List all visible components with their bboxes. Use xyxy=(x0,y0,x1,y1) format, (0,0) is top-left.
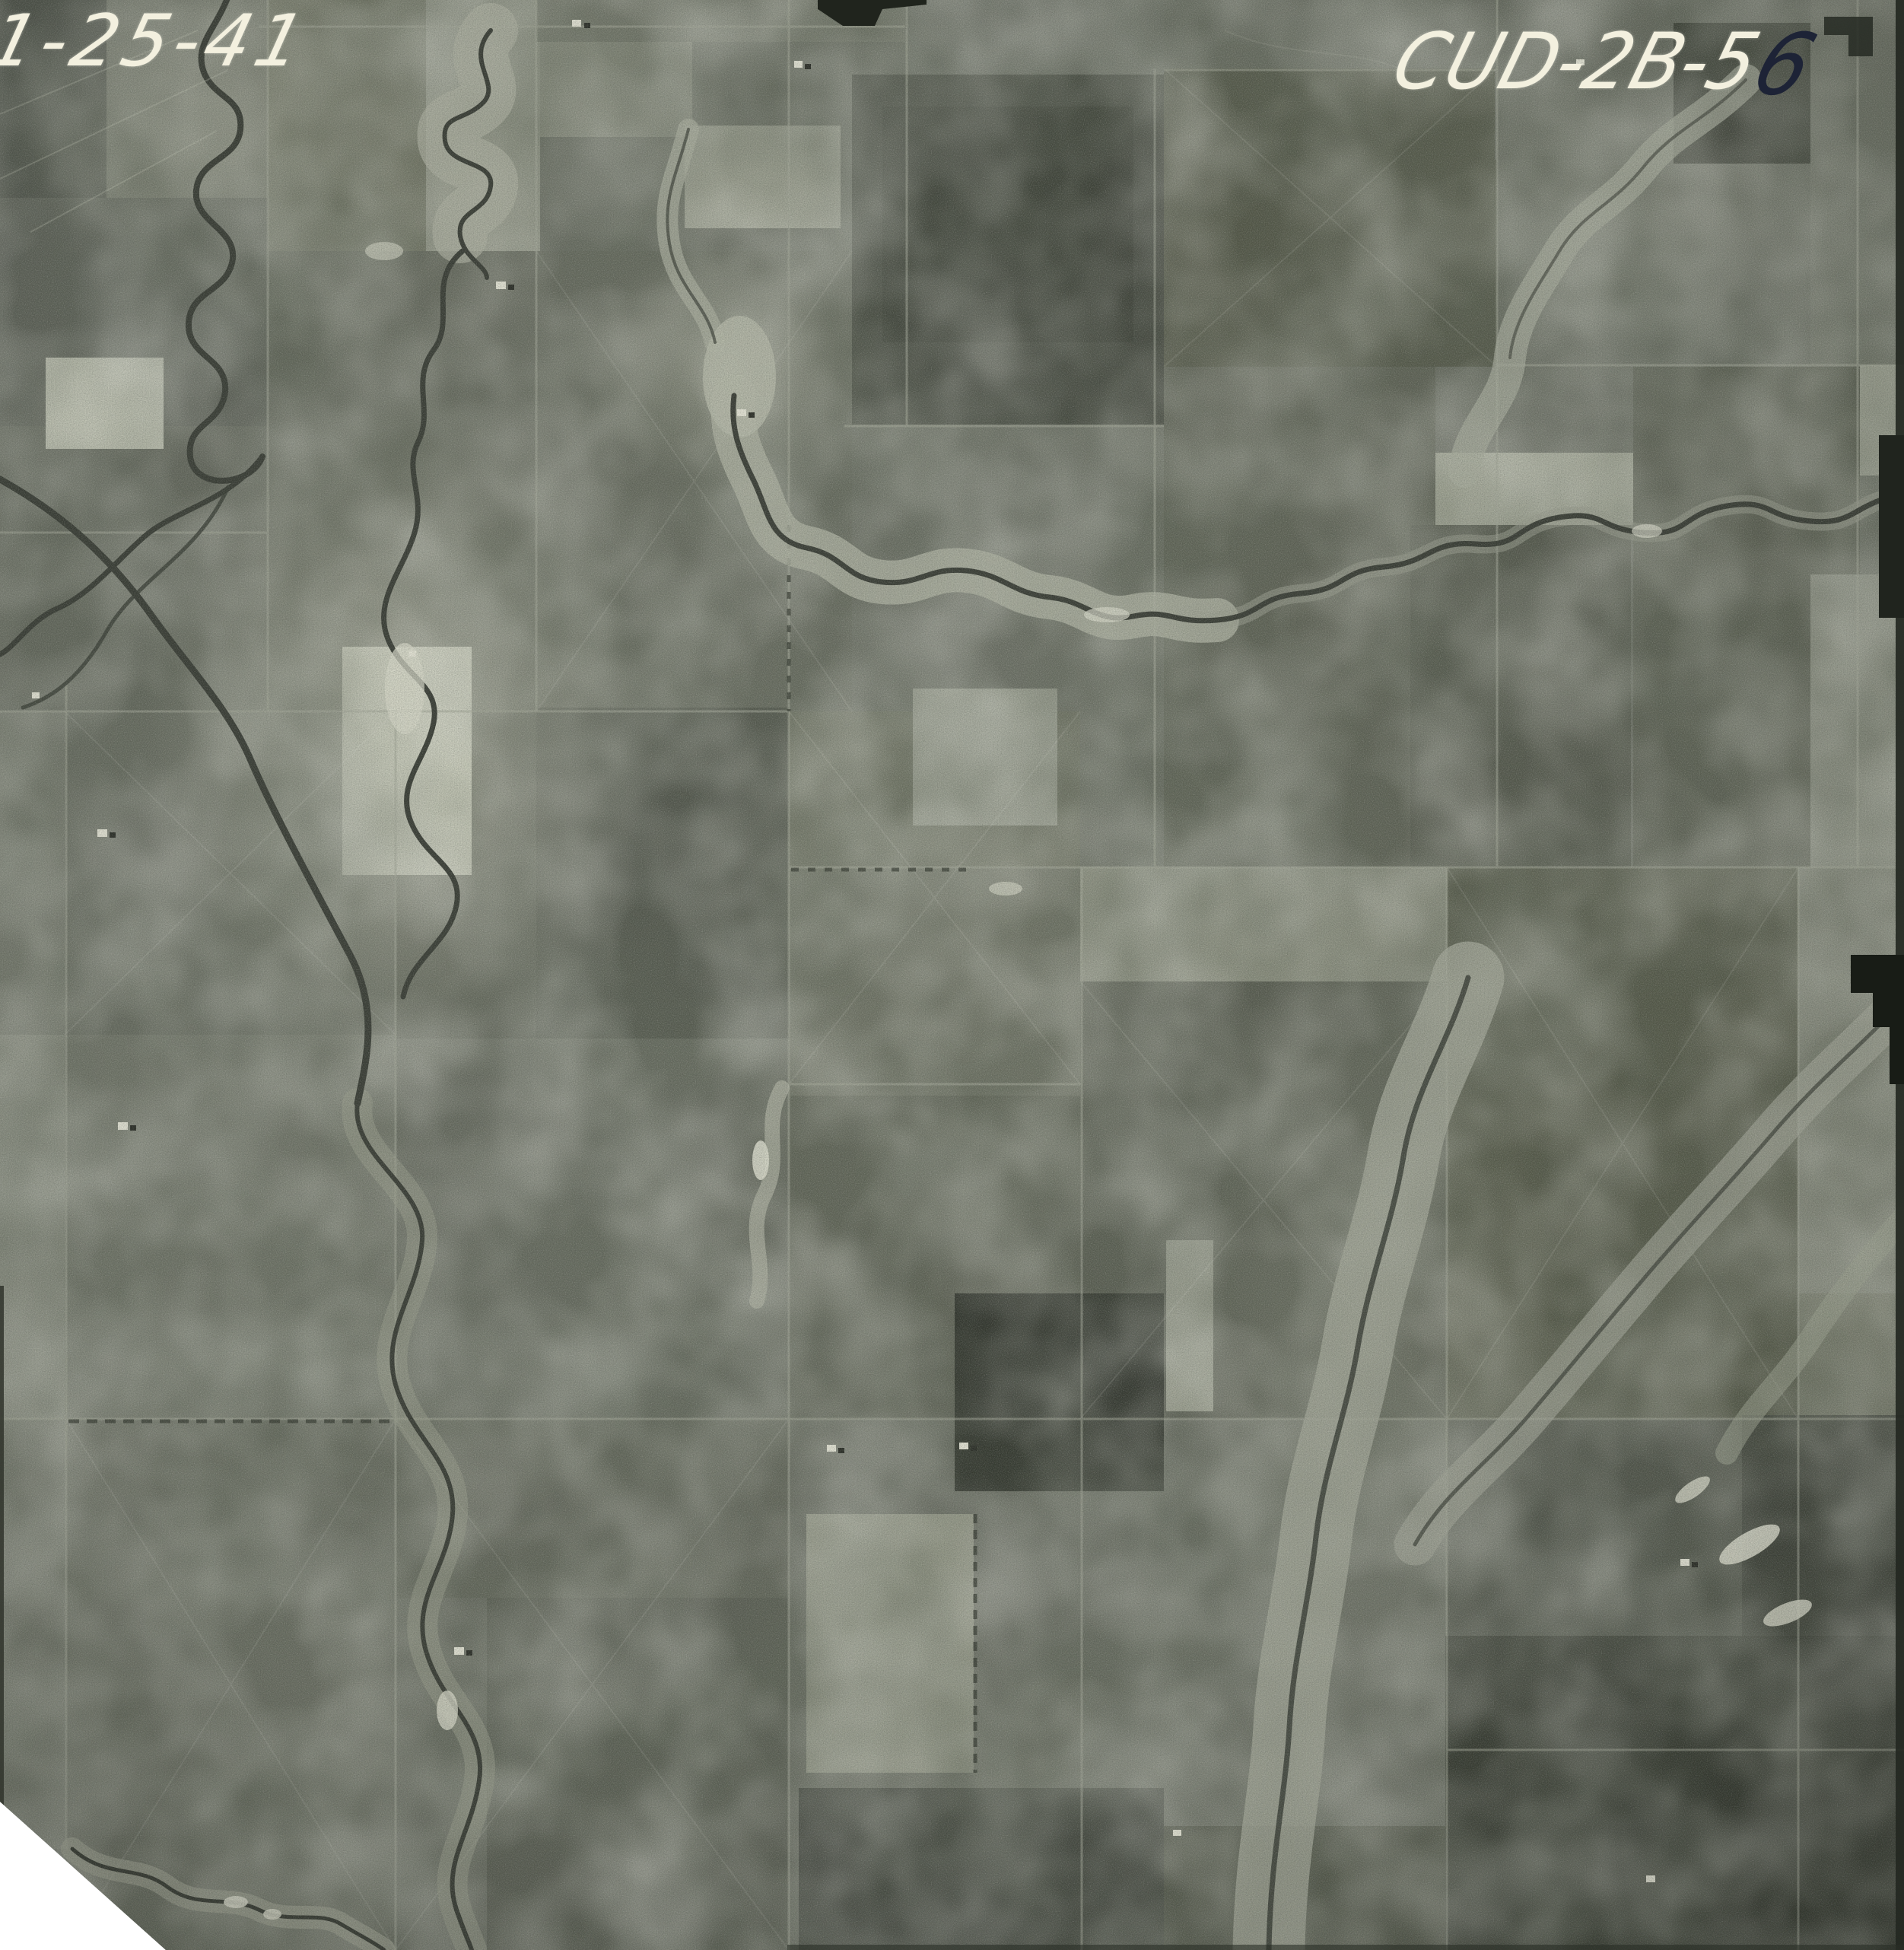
vignette-layer xyxy=(0,0,1904,1950)
aerial-photo-image xyxy=(0,0,1904,1950)
date-annotation-text: 1-25-41 xyxy=(0,0,317,83)
photo-id-annotation: CUD-2B-56 xyxy=(1383,8,1828,109)
photo-id-white-text: CUD-2B-5 xyxy=(1383,17,1769,107)
date-annotation: 1-25-41 xyxy=(0,0,317,83)
aerial-photo-frame: 1-25-41 CUD-2B-56 xyxy=(0,0,1904,1950)
